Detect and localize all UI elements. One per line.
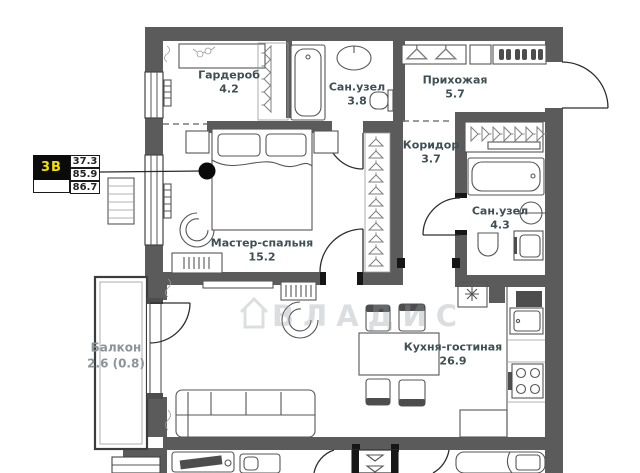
legend-areas: 37.3 85.9 86.7 (70, 155, 100, 194)
watermark: ВЛАДИС (272, 299, 466, 333)
curtain-squiggle (165, 46, 170, 62)
room-area: 5.7 (423, 88, 488, 102)
location-dot (199, 163, 216, 180)
sofa-icon (176, 390, 315, 437)
floorplan: Гардероб 4.2 Сан.узел 3.8 Прихожая 5.7 К… (0, 0, 640, 473)
room-label-wardrobe: Гардероб 4.2 (198, 69, 260, 98)
tv-console-icon (203, 281, 273, 288)
unit-type-badge: 3В (33, 155, 70, 180)
corridor-closet (465, 122, 547, 152)
bathtub-icon (468, 158, 544, 195)
sink-icon (337, 46, 371, 70)
room-name: Мастер-спальня (211, 237, 313, 251)
balcony-door (147, 298, 190, 399)
ac-basket-icon (108, 178, 134, 224)
kitchen-cabinet-icon (516, 291, 542, 307)
room-area: 3.7 (403, 153, 459, 167)
legend-area-main: 85.9 (70, 168, 100, 181)
hallway-furniture (402, 45, 546, 64)
room-label-balcony: Балкон 2.6 (0.8) (87, 340, 145, 371)
shoe-cabinet-icon (493, 45, 546, 64)
room-area: 2.6 (0.8) (87, 356, 145, 372)
hallway-cabinet (470, 45, 491, 64)
washing-machine-icon (514, 231, 543, 260)
vent-shaft-icon (352, 450, 398, 473)
legend-blank-cell (33, 180, 70, 193)
bedroom-door-arc (320, 229, 363, 272)
window-left-lower (145, 155, 163, 245)
toilet-icon (478, 233, 498, 256)
room-name: Коридор (403, 139, 459, 153)
wardrobe-shelf-icon (179, 44, 265, 68)
kitchen-island-icon (460, 410, 507, 437)
neighbor-desk-icon (172, 452, 234, 472)
window-left-upper (145, 72, 163, 118)
entry-door-arc (562, 62, 608, 108)
bedroom-closet (365, 133, 390, 272)
floorplan-drawing (0, 0, 640, 473)
legend-area-living: 37.3 (70, 155, 100, 168)
room-name: Сан.узел (472, 205, 528, 219)
legend-area-total: 86.7 (70, 181, 100, 194)
room-label-corridor: Коридор 3.7 (403, 139, 459, 168)
room-name: Сан.узел (329, 81, 385, 95)
watermark-house-icon (241, 299, 267, 327)
room-label-hallway: Прихожая 5.7 (423, 74, 488, 103)
bathtub-icon (291, 45, 325, 120)
window-below-balcony (112, 457, 160, 473)
radiator-icon (164, 80, 171, 218)
room-label-bath-right: Сан.узел 4.3 (472, 205, 528, 234)
room-name: Прихожая (423, 74, 488, 88)
kitchen-sink-icon (510, 308, 543, 334)
room-area: 26.9 (404, 355, 502, 369)
room-label-bath-top: Сан.узел 3.8 (329, 81, 385, 110)
media-shelf-icon (281, 282, 316, 300)
neighbor-unit (172, 450, 545, 473)
room-area: 3.8 (329, 95, 385, 109)
room-name: Балкон (87, 340, 145, 356)
room-name: Гардероб (198, 69, 260, 83)
room-label-master: Мастер-спальня 15.2 (211, 237, 313, 266)
room-label-kitchen: Кухня-гостиная 26.9 (404, 341, 502, 370)
bed-icon (212, 129, 312, 230)
neighbor-bed-icon (240, 454, 280, 473)
windows (108, 72, 171, 245)
room-name: Кухня-гостиная (404, 341, 502, 355)
neighbor-door-arc (314, 450, 334, 473)
room-area: 4.3 (472, 219, 528, 233)
neighbor-bed-icon (456, 452, 545, 473)
bathroom-right-door-arc (423, 198, 460, 235)
neighbor-door-arc (433, 450, 449, 473)
nightstand-icon (186, 131, 209, 153)
armchair-icon (180, 213, 214, 247)
room-area: 4.2 (198, 83, 260, 97)
stove-icon (508, 364, 543, 398)
unit-legend: 3В 37.3 85.9 86.7 (33, 155, 100, 193)
nightstand-icon (314, 131, 338, 153)
room-area: 15.2 (211, 251, 313, 265)
